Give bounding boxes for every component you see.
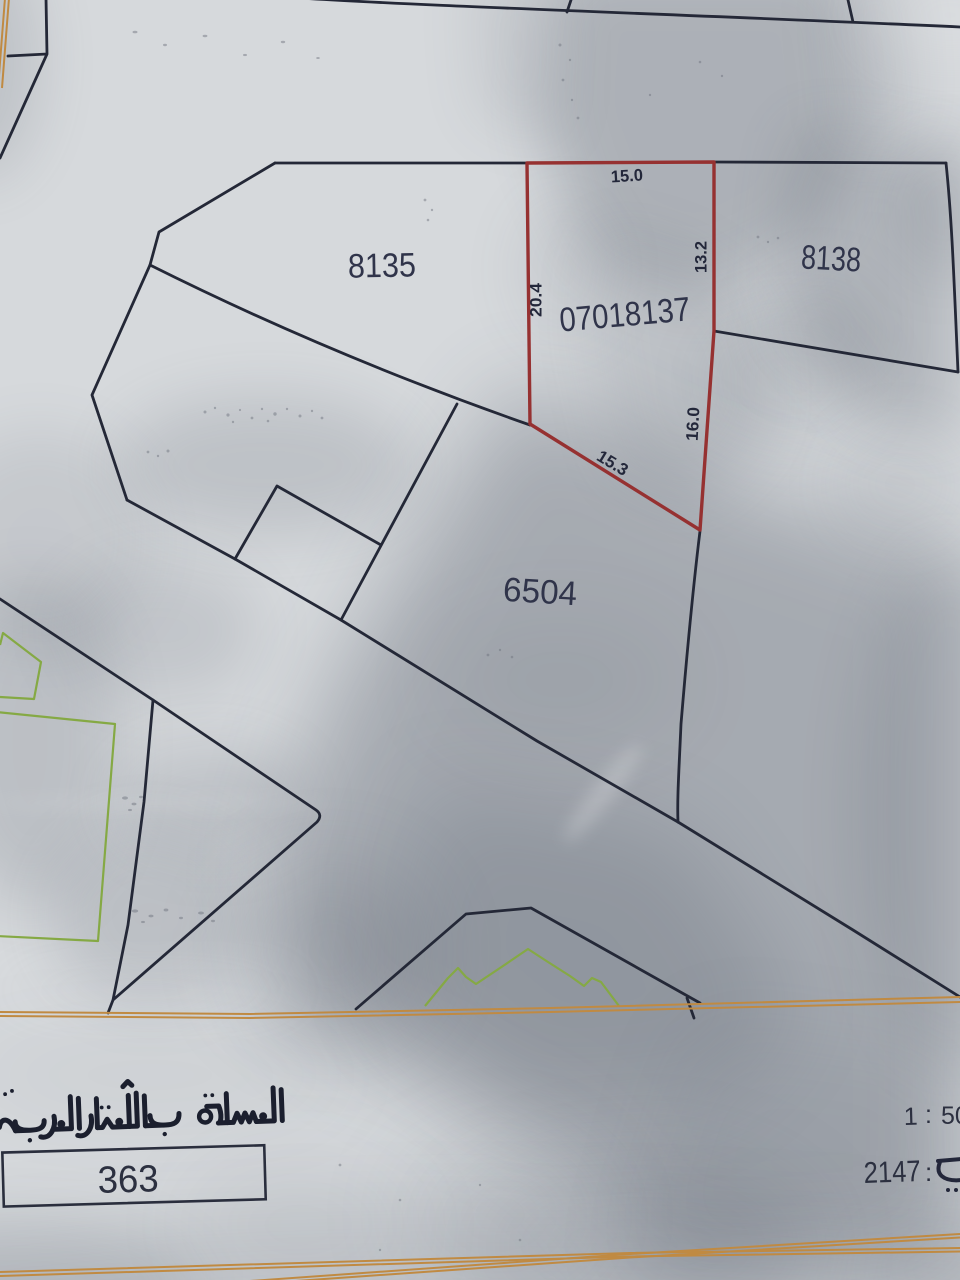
- svg-text::: :: [925, 1101, 932, 1129]
- svg-text:50: 50: [941, 1102, 960, 1130]
- svg-text:8138: 8138: [800, 238, 862, 279]
- svg-text::: :: [925, 1157, 932, 1187]
- svg-text:13.2: 13.2: [691, 241, 710, 273]
- svg-text:15.0: 15.0: [610, 166, 643, 187]
- svg-text:2147: 2147: [863, 1155, 921, 1190]
- svg-text:16.0: 16.0: [683, 406, 704, 441]
- svg-text:8135: 8135: [348, 246, 417, 285]
- svg-text:20.4: 20.4: [526, 282, 545, 317]
- svg-text:363: 363: [97, 1158, 159, 1202]
- svg-text:6504: 6504: [502, 571, 578, 613]
- svg-text:1: 1: [903, 1103, 918, 1131]
